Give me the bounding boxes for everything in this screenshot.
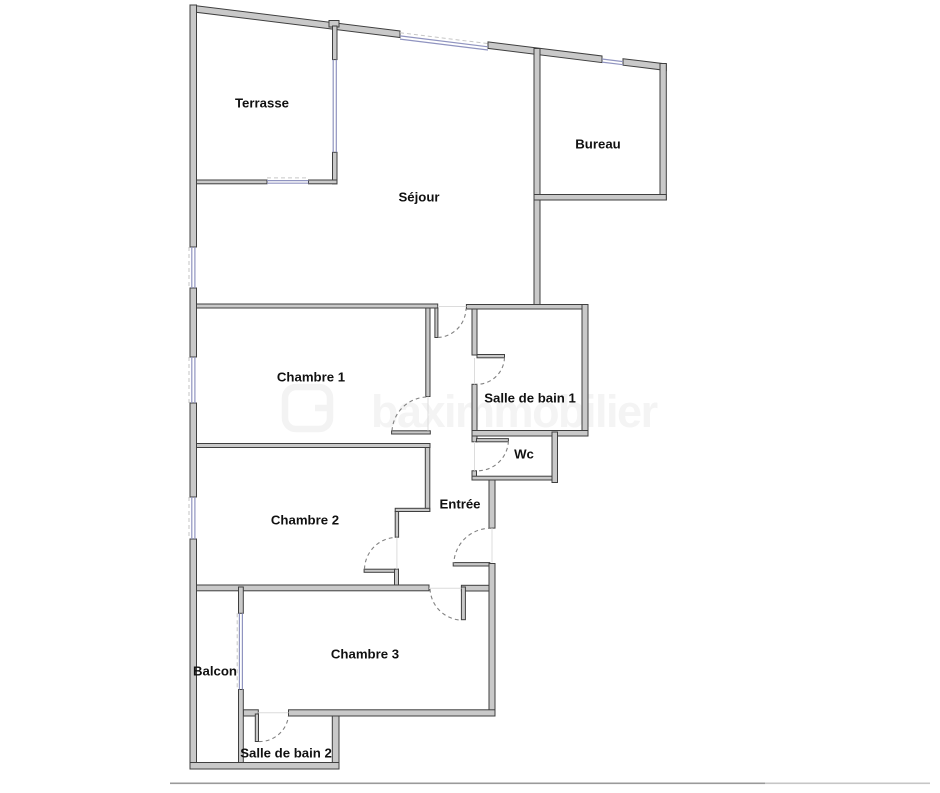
svg-text:Chambre 3: Chambre 3 (331, 647, 399, 662)
svg-text:Chambre 1: Chambre 1 (277, 370, 345, 385)
svg-text:Bureau: Bureau (575, 137, 620, 152)
svg-text:Salle de bain 2: Salle de bain 2 (240, 746, 332, 761)
svg-text:Balcon: Balcon (193, 664, 237, 679)
svg-text:Séjour: Séjour (398, 190, 439, 205)
svg-text:Chambre 2: Chambre 2 (271, 513, 339, 528)
svg-text:Entrée: Entrée (439, 497, 480, 512)
svg-text:Terrasse: Terrasse (235, 96, 289, 111)
svg-text:Salle de bain 1: Salle de bain 1 (484, 391, 576, 406)
svg-text:Wc: Wc (514, 447, 534, 462)
